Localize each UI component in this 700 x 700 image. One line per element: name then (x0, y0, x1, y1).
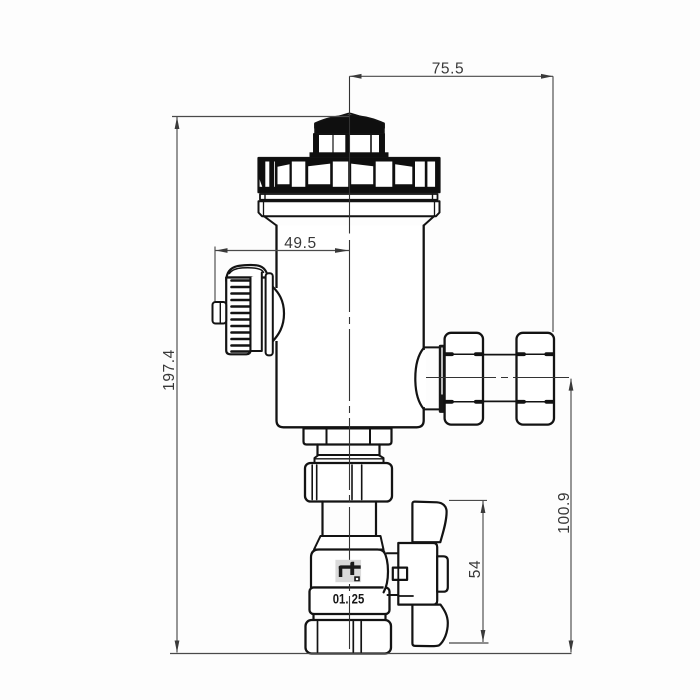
svg-text:01. 25: 01. 25 (333, 592, 365, 607)
svg-text:197.4: 197.4 (161, 349, 178, 391)
svg-text:49.5: 49.5 (284, 235, 317, 252)
svg-text:75.5: 75.5 (432, 61, 465, 78)
svg-text:54: 54 (467, 560, 484, 578)
svg-text:100.9: 100.9 (556, 492, 573, 534)
